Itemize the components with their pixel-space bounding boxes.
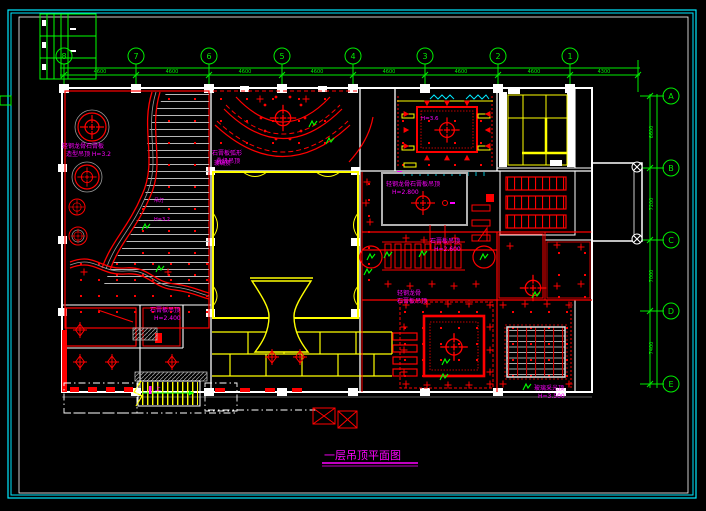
downlight-field (215, 92, 345, 144)
label-line: 轻钢龙骨石膏板吊顶 (386, 180, 440, 188)
grid-bubble-label: 3 (422, 52, 427, 61)
dim-text: 7200 (649, 198, 655, 211)
room-banquet (400, 301, 494, 389)
dim-text: 4600 (383, 69, 396, 75)
label-slat-2: H=3.2 (154, 217, 170, 223)
plan-title-text: 一层吊顶平面图 (324, 449, 401, 462)
dim-text: 4600 (239, 69, 252, 75)
label-line: 玻璃采光顶 (534, 384, 564, 392)
label-line: 石膏板弧形 (212, 149, 242, 157)
grid-bubble-label: 5 (279, 52, 284, 61)
room-skylight (497, 292, 573, 390)
label-line: H=3.500 (538, 393, 565, 400)
dim-text: 7000 (649, 270, 655, 283)
vent-grille (133, 328, 157, 340)
room-louvers (500, 171, 575, 235)
cad-viewport[interactable]: 8 7 6 5 4 3 2 1 4600 4600 4600 4600 4600… (0, 0, 706, 511)
dim-text: 4600 (166, 69, 179, 75)
dim-text: 4600 (528, 69, 541, 75)
grid-bubble-label: 7 (133, 52, 138, 61)
vent-grille (135, 372, 207, 381)
grid-bubble-label: 1 (567, 52, 572, 61)
label-line: 轻钢龙骨 (397, 289, 421, 297)
grid-bubble-label: 2 (495, 52, 500, 61)
label-line: 石膏板吊顶 (397, 297, 427, 305)
grid-bubble-label: 6 (206, 52, 211, 61)
label-line: 石膏板吊顶 (150, 306, 180, 314)
louver-grille (506, 196, 566, 209)
label-line: H=2.600 (434, 246, 461, 253)
grid-bubble-label: D (668, 307, 674, 316)
label-line: 石膏板吊顶 (430, 237, 460, 245)
grid-bubble-label: E (668, 380, 673, 389)
dim-text: 6600 (649, 126, 655, 139)
glass-ceiling (507, 327, 565, 377)
exterior-stair (134, 381, 200, 406)
label-line: 轻钢龙骨石膏板 (62, 142, 104, 150)
cad-canvas[interactable]: 8 7 6 5 4 3 2 1 4600 4600 4600 4600 4600… (0, 0, 706, 511)
grid-bubble-label: B (668, 164, 674, 173)
grid-bubble-label: A (668, 92, 674, 101)
label-height: H=3.6 (421, 116, 439, 122)
label-slat-1: 吊灯 (154, 197, 164, 204)
label-line: 造型吊顶 H=3.2 (66, 150, 111, 158)
grid-bubble-label: 4 (350, 52, 355, 61)
dim-text: 4300 (598, 69, 611, 75)
louver-grille (506, 177, 566, 190)
label-courtyard: 玻璃顶 (214, 159, 231, 167)
dim-text: 4600 (455, 69, 468, 75)
label-line: H=2.400 (154, 315, 181, 322)
label-line: H=2.800 (392, 189, 419, 196)
dim-text: 7400 (649, 342, 655, 355)
louver-grille (506, 215, 566, 228)
label-stair-up: 上 (155, 385, 161, 393)
room-dining (397, 95, 493, 176)
dim-text: 4600 (94, 69, 107, 75)
grid-bubble-label: C (668, 236, 674, 245)
dim-text: 4600 (311, 69, 324, 75)
grid-bubble-label: 8 (61, 52, 66, 61)
